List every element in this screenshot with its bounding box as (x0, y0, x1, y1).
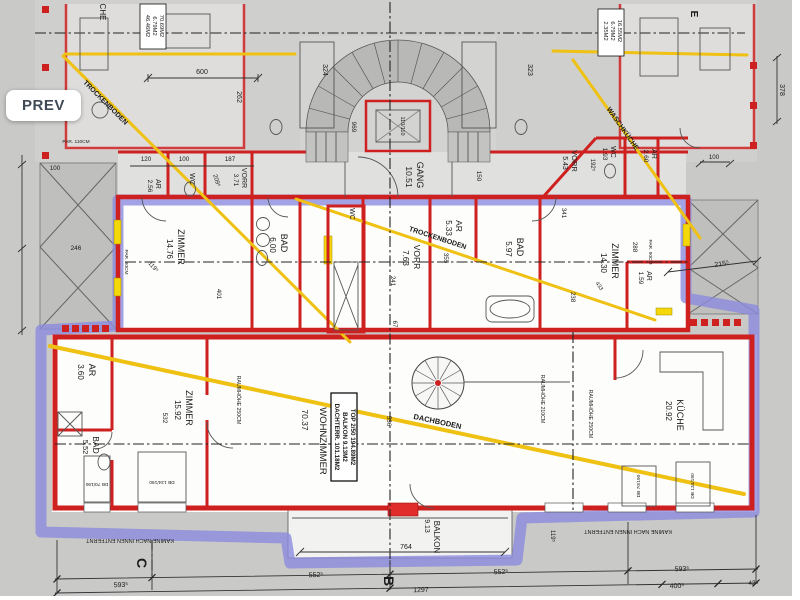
axis-label: B (381, 576, 397, 586)
note-label: DB 70/190 (636, 474, 642, 497)
room-label: 1.59 (637, 272, 644, 285)
room-label: AR (650, 149, 657, 159)
dimension-label: 324 (321, 64, 328, 76)
note-label: RAUMHÖHE 250CM (235, 376, 242, 424)
room-label: VORR (570, 150, 579, 172)
room-label: KÜCHE (675, 399, 685, 431)
note-label: KAMINE NACH INNEN ENTFERNT (584, 528, 672, 534)
floor-plan-drawing: ZIMMER14.76BAD6.00WCVORR7.63AR5.33BAD5.9… (0, 0, 792, 596)
room-label: VORR (412, 245, 422, 270)
room-label: 5.43 (561, 156, 568, 170)
area-box-label: 46.46M2 (144, 15, 150, 38)
area-box-label: DACHTERR. 101.18M2 (333, 404, 340, 471)
plan-label: 110/110 (399, 116, 405, 135)
room-label: 14.76 (165, 239, 174, 260)
note-label: RAUMHÖHE 250CM (587, 390, 594, 438)
dimension-label: 187 (225, 156, 236, 163)
room-label: ZIMMER (184, 390, 194, 426)
room-label: BALKON (432, 521, 441, 554)
dimension-label: 764 (400, 544, 412, 551)
note-label: DB 134/190 (690, 473, 696, 499)
spiral-staircase (412, 357, 464, 409)
dimension-label: 552⁵ (494, 569, 509, 577)
axis-label: E (688, 11, 699, 18)
dimension-label: 120 (141, 156, 152, 163)
dimension-label: 400⁵ (670, 583, 685, 591)
area-box-label: TOP 2/50 194.89M2 (349, 409, 356, 466)
room-label: 3.71 (232, 174, 239, 187)
room-label: 6.00 (268, 237, 277, 253)
dimension-label: 1297 (413, 587, 429, 595)
note-label: DB 70/190 (85, 481, 108, 487)
room-label: 5.97 (504, 241, 513, 257)
room-label: WC (348, 208, 355, 220)
dimension-label: 323 (526, 64, 533, 76)
room-label: WOHNZIMMER (317, 407, 328, 475)
room-label: WC (188, 173, 195, 185)
dimension-label: 288 (631, 242, 638, 253)
dimension-label: 100 (179, 156, 190, 163)
dimension-label: 600 (196, 69, 208, 76)
dimension-label: 552⁵ (309, 572, 324, 580)
prev-button[interactable]: PREV (6, 90, 81, 121)
room-label: 20.92 (664, 401, 673, 422)
dimension-label: 536 (385, 416, 392, 427)
room-label: 3.60 (76, 364, 85, 380)
room-label: CHE (98, 4, 107, 21)
dimension-label: 262 (235, 91, 242, 103)
dimension-label: 593⁵ (675, 566, 690, 574)
dimension-label: 42 (748, 580, 756, 587)
area-box-label: 6.79M2 (151, 16, 157, 35)
dimension-label: 150 (475, 171, 482, 182)
dimension-label: 119⁵ (549, 530, 556, 543)
room-label: GANG (415, 162, 425, 189)
room-label: 5.52 (81, 440, 90, 455)
dimension-label: 378 (778, 84, 785, 96)
dimension-label: 100 (50, 165, 61, 172)
axis-label: C (134, 558, 150, 568)
dimension-label: 246 (71, 245, 82, 252)
area-box-label: 70.69M2 (158, 15, 164, 38)
floorplan-viewer: ZIMMER14.76BAD6.00WCVORR7.63AR5.33BAD5.9… (0, 0, 800, 600)
room-label: 5.33 (444, 220, 453, 236)
area-box-label: 2.35M2 (602, 21, 608, 40)
area-box-label: BALKON 9.13M2 (341, 412, 348, 462)
dimension-label: 67 (391, 321, 397, 328)
note-label: KAMINE NACH INNEN ENTFERNT (86, 537, 174, 543)
room-label: 10.51 (404, 166, 414, 188)
room-label: ZIMMER (610, 243, 620, 279)
dimension-label: 401 (215, 289, 222, 300)
room-label: AR (87, 364, 97, 377)
dimension-label: 593⁵ (114, 582, 129, 590)
area-box-label: 6.79M2 (609, 21, 615, 40)
room-label: 70.37 (300, 409, 310, 431)
dimension-label: 192⁵ (589, 159, 596, 172)
note-label: PAR. 110CM (62, 139, 89, 145)
dimension-label: 100 (709, 154, 720, 161)
note-label: DB 134/190 (149, 479, 175, 485)
room-label: 2.56 (146, 180, 153, 193)
dimension-label: 355 (442, 253, 449, 264)
room-label: AR (454, 220, 464, 232)
room-label: 532 (161, 413, 168, 424)
room-label: ZIMMER (176, 229, 186, 265)
room-label: 15.92 (173, 400, 182, 421)
note-label: RAUMHÖHE 210CM (539, 375, 546, 423)
dimension-label: 341 (560, 208, 567, 219)
room-label: 14.30 (599, 253, 608, 274)
room-label: 7.63 (401, 250, 410, 266)
note-label: PAR. 90CM (647, 240, 653, 265)
room-label: BAD (515, 238, 525, 257)
dimension-label: 969 (350, 122, 357, 133)
note-label: PAR. 80CM (123, 250, 129, 275)
room-label: AR (645, 271, 652, 281)
room-label: 9.13 (423, 519, 430, 533)
room-label: BAD (91, 436, 101, 453)
room-label: AR (154, 179, 161, 189)
room-label: WC (609, 146, 616, 158)
room-label: VORR (240, 168, 247, 188)
area-box-label: 16.55M2 (616, 20, 622, 43)
room-label: 2.60 (642, 150, 649, 163)
room-label: BAD (279, 234, 289, 253)
room-label: 1.93 (601, 148, 608, 161)
dimension-label: 238 (569, 292, 576, 303)
dimension-label: 241 (389, 276, 396, 287)
